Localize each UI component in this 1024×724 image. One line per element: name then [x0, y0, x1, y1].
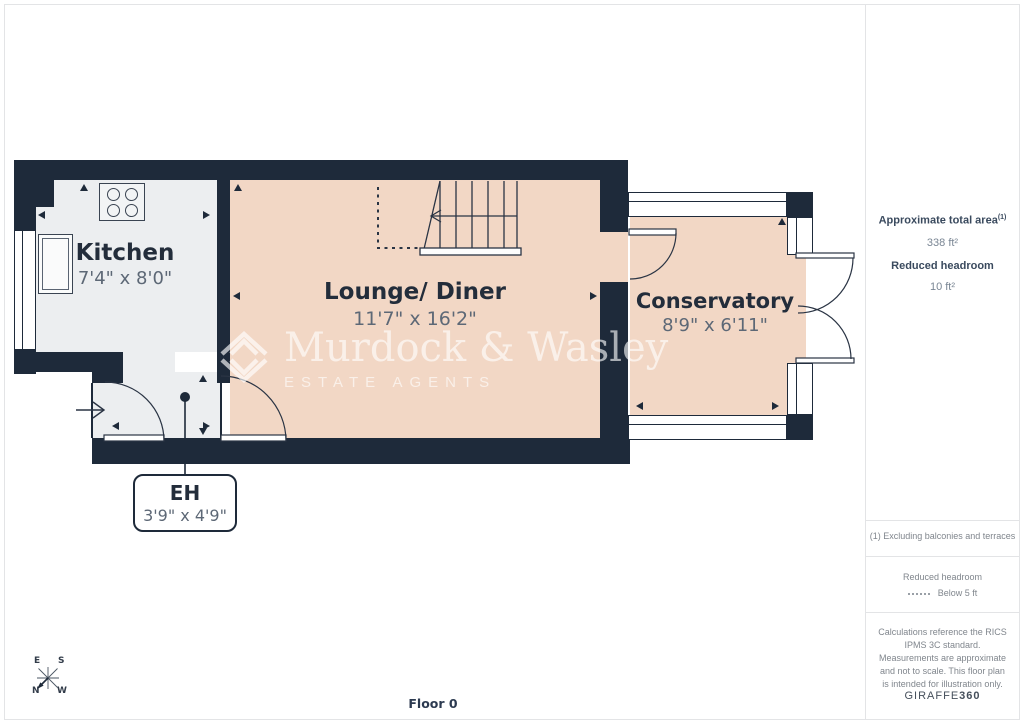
wall-left-lower [14, 350, 36, 374]
room-dimensions: 8'9" x 6'11" [630, 315, 800, 336]
info-sidebar: Approximate total area(1) 338 ft² Reduce… [866, 5, 1019, 719]
room-name: EH [135, 481, 235, 505]
room-dimensions: 3'9" x 4'9" [135, 506, 235, 525]
lounge-label: Lounge/ Diner 11'7" x 16'2" [235, 279, 595, 330]
room-dimensions: 7'4" x 8'0" [30, 268, 220, 289]
window-mullion [629, 201, 786, 202]
dashed-line-icon [908, 593, 930, 595]
conservatory-window-right-upper [787, 217, 813, 255]
eh-callout: EH 3'9" x 4'9" [133, 474, 237, 532]
wall-bottom [92, 438, 630, 464]
conservatory-window-top [628, 192, 787, 217]
disclaimer-text: Calculations reference the RICS IPMS 3C … [866, 626, 1019, 691]
total-area-label: Approximate total area(1) [866, 214, 1019, 227]
legend-value: Below 5 ft [938, 588, 978, 598]
room-name: Lounge/ Diner [235, 279, 595, 305]
burner-icon [107, 188, 120, 201]
footnote-text: (1) Excluding balconies and terraces [866, 531, 1019, 541]
window-mullion [629, 424, 786, 425]
floor-label: Floor 0 [0, 696, 866, 711]
wall-left-upper [14, 160, 36, 230]
legend-label: Reduced headroom [866, 572, 1019, 582]
sidebar-rule [866, 520, 1019, 521]
conservatory-window-bottom [628, 415, 787, 440]
total-area-label-text: Approximate total area [879, 215, 998, 227]
lounge-conservatory-doorway-floor [600, 232, 628, 282]
kitchen-label: Kitchen 7'4" x 8'0" [30, 240, 220, 289]
conservatory-window-right-lower [787, 363, 813, 415]
wall-conservatory-ne-corner [787, 192, 813, 217]
window-mullion [22, 231, 23, 349]
burner-icon [125, 188, 138, 201]
total-area-footnote-ref: (1) [998, 214, 1007, 221]
brand-name: GIRAFFE [904, 690, 959, 702]
brand-suffix: 360 [959, 690, 980, 702]
kitchen-doorway-floor [123, 352, 175, 372]
wall-kitchen-bottom [36, 352, 123, 372]
wall-eh-lounge-thin [220, 383, 222, 438]
floorplan-page: Kitchen 7'4" x 8'0" Lounge/ Diner 11'7" … [0, 0, 1024, 724]
french-door-top-arc [798, 258, 853, 313]
reduced-headroom-value: 10 ft² [866, 281, 1019, 293]
wall-eh-notch [92, 372, 123, 383]
stove-hob-icon [99, 183, 145, 221]
sidebar-rule [866, 612, 1019, 613]
compass-star-icon [35, 665, 61, 691]
legend-row: Below 5 ft [866, 588, 1019, 598]
wall-lounge-right-upper [600, 160, 628, 232]
wall-conservatory-se-corner [787, 415, 813, 440]
reduced-headroom-label: Reduced headroom [866, 260, 1019, 272]
wall-lounge-right-lower [600, 282, 628, 464]
room-name: Kitchen [30, 240, 220, 266]
giraffe360-brand: GIRAFFE360 [866, 690, 1019, 702]
window-mullion [796, 218, 797, 254]
burner-icon [125, 204, 138, 217]
wall-eh-left-thin [91, 383, 93, 438]
burner-icon [107, 204, 120, 217]
sidebar-rule [866, 556, 1019, 557]
room-dimensions: 11'7" x 16'2" [235, 308, 595, 330]
window-mullion [796, 364, 797, 414]
room-name: Conservatory [630, 289, 800, 313]
total-area-value: 338 ft² [866, 237, 1019, 249]
wall-top [14, 160, 600, 180]
conservatory-label: Conservatory 8'9" x 6'11" [630, 289, 800, 336]
